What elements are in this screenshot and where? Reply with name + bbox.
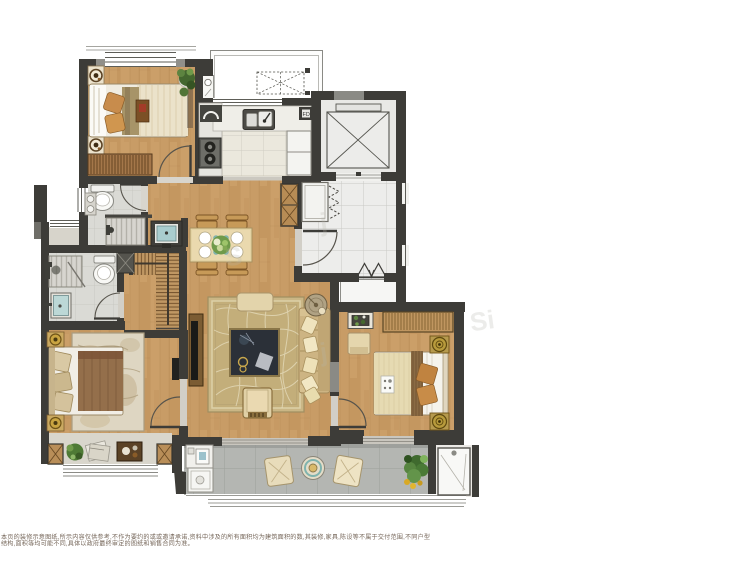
svg-text:FD: FD	[303, 112, 310, 118]
svg-text:Si: Si	[468, 304, 497, 337]
